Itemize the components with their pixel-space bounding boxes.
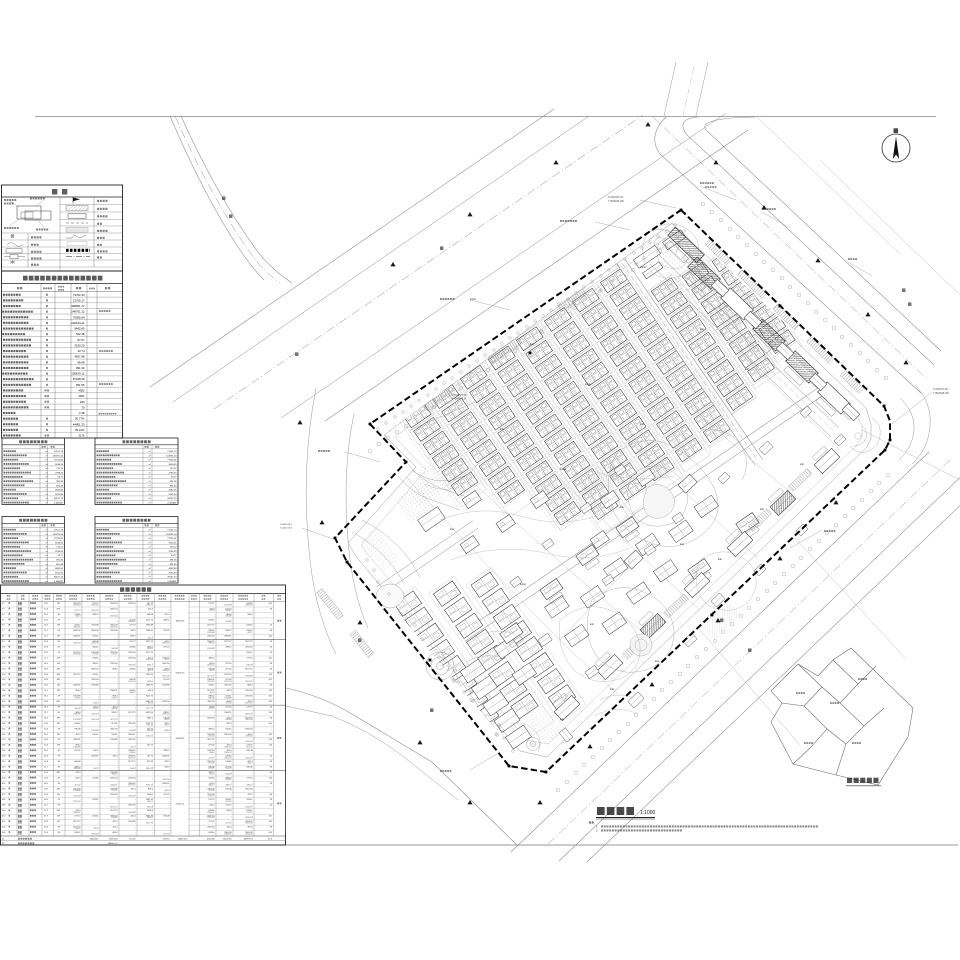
svg-text:4592.54: 4592.54 [245, 605, 253, 607]
svg-text:1058.6: 1058.6 [74, 697, 81, 699]
svg-text:257.42: 257.42 [225, 823, 232, 825]
svg-text:1903.88: 1903.88 [207, 648, 215, 650]
svg-text:4592.54: 4592.54 [146, 785, 154, 787]
svg-text:26157.13: 26157.13 [167, 498, 177, 500]
svg-text:4592.54: 4592.54 [162, 643, 170, 645]
svg-text:54.77: 54.77 [171, 477, 177, 479]
svg-text:87.67: 87.67 [78, 338, 85, 342]
svg-text:137.72: 137.72 [111, 790, 118, 792]
svg-text:70: 70 [81, 405, 85, 409]
svg-text:1058.6: 1058.6 [129, 752, 136, 754]
svg-text:3127.72: 3127.72 [110, 719, 118, 721]
svg-text:m²: m² [46, 559, 49, 562]
svg-text:946.08: 946.08 [147, 730, 154, 732]
svg-text:1903.88: 1903.88 [73, 746, 81, 748]
svg-text:m²: m² [46, 529, 49, 532]
svg-text:54.77: 54.77 [58, 477, 64, 479]
svg-text:137.72: 137.72 [111, 654, 118, 656]
svg-text:4592.54: 4592.54 [207, 665, 215, 667]
svg-text:103751.54: 103751.54 [166, 534, 177, 536]
svg-text:26157.13: 26157.13 [54, 577, 64, 579]
svg-text:2561.33: 2561.33 [73, 801, 81, 803]
svg-text:m²: m² [149, 501, 152, 504]
svg-text:m²: m² [46, 476, 49, 479]
svg-text:2561.33: 2561.33 [245, 719, 253, 721]
svg-text:17151.73: 17151.73 [54, 530, 64, 532]
svg-text:m²: m² [46, 471, 49, 474]
svg-text:77732.87: 77732.87 [54, 460, 64, 462]
svg-text:m²: m² [149, 471, 152, 474]
svg-text:3127.72: 3127.72 [128, 785, 136, 787]
svg-text:77732.87: 77732.87 [54, 538, 64, 540]
svg-text:5536.55: 5536.55 [55, 464, 64, 466]
svg-text:3924: 3924 [78, 394, 85, 398]
svg-text:715.12: 715.12 [170, 547, 177, 549]
svg-text:2592.64: 2592.64 [146, 659, 154, 661]
svg-text:348961.72: 348961.72 [71, 304, 85, 308]
svg-text:462.3: 462.3 [209, 692, 215, 694]
svg-text:2592.64: 2592.64 [91, 834, 99, 836]
svg-text:2592.64: 2592.64 [128, 795, 136, 797]
svg-text:137.72: 137.72 [208, 795, 215, 797]
svg-text:103751.54: 103751.54 [53, 455, 64, 457]
svg-text:Y=504216.8: Y=504216.8 [280, 528, 293, 530]
svg-text:1056.1: 1056.1 [147, 801, 154, 803]
svg-text:4592.54: 4592.54 [128, 681, 136, 683]
svg-text:30.77%: 30.77% [75, 417, 85, 421]
svg-text:3176: 3176 [78, 434, 85, 438]
svg-text:2561.33: 2561.33 [162, 675, 170, 677]
svg-text:257.42: 257.42 [225, 801, 232, 803]
svg-text:2584.91: 2584.91 [128, 621, 136, 623]
svg-text:17151.73: 17151.73 [167, 530, 177, 532]
svg-text:m²: m² [149, 563, 152, 566]
svg-text:5536.55: 5536.55 [55, 542, 64, 544]
svg-text:46379.74: 46379.74 [244, 839, 254, 841]
svg-text:831.55: 831.55 [76, 383, 85, 387]
svg-text:m²: m² [149, 459, 152, 462]
svg-text:946.08: 946.08 [225, 774, 232, 776]
svg-text:1903.88: 1903.88 [73, 719, 81, 721]
svg-text:1903.88: 1903.88 [128, 812, 136, 814]
svg-text:2561.33: 2561.33 [73, 795, 81, 797]
svg-text:3127.72: 3127.72 [245, 703, 253, 705]
svg-text:9731.94: 9731.94 [169, 494, 178, 496]
svg-text:103751.54: 103751.54 [166, 455, 177, 457]
svg-text:946.08: 946.08 [225, 616, 232, 618]
svg-text:257.42: 257.42 [147, 725, 154, 727]
svg-text:991.40: 991.40 [76, 366, 85, 370]
svg-text:26157.13: 26157.13 [54, 498, 64, 500]
svg-text:2561.33: 2561.33 [224, 681, 232, 683]
svg-text:2592.64: 2592.64 [162, 670, 170, 672]
svg-text:17151.73: 17151.73 [167, 451, 177, 453]
svg-text:391.36: 391.36 [170, 481, 177, 483]
svg-text:248701.12: 248701.12 [71, 310, 85, 314]
svg-text:2592.64: 2592.64 [207, 817, 215, 819]
svg-text:4582.60: 4582.60 [55, 490, 64, 492]
svg-text:2.454687: 2.454687 [54, 581, 64, 583]
svg-text:891.48: 891.48 [170, 485, 177, 487]
svg-text:257.42: 257.42 [225, 703, 232, 705]
svg-text:3579.5: 3579.5 [163, 839, 170, 841]
svg-text:715.12: 715.12 [56, 468, 63, 470]
svg-text:m²: m² [149, 550, 152, 553]
svg-text:808.4: 808.4 [148, 703, 154, 705]
svg-text:808.4: 808.4 [164, 730, 170, 732]
svg-text:m²: m² [46, 567, 49, 570]
svg-text:2561.33: 2561.33 [91, 643, 99, 645]
svg-text:2592.64: 2592.64 [91, 605, 99, 607]
svg-text:70594.04: 70594.04 [109, 839, 119, 841]
svg-text:56424.47: 56424.47 [90, 839, 100, 841]
svg-text:1056.1: 1056.1 [147, 648, 154, 650]
svg-text:3381.2: 3381.2 [208, 643, 215, 645]
svg-text:1056.1: 1056.1 [147, 681, 154, 683]
svg-text:m²: m² [149, 537, 152, 540]
svg-text:2796.25: 2796.25 [169, 472, 178, 474]
svg-text:Y=504348.138: Y=504348.138 [933, 392, 949, 395]
svg-text:43.74: 43.74 [78, 349, 85, 353]
svg-text:m²: m² [149, 476, 152, 479]
svg-text:m²: m² [46, 576, 49, 579]
svg-text:70547.81: 70547.81 [223, 839, 233, 841]
svg-text:246194.41: 246194.41 [71, 321, 85, 325]
svg-text:3381.2: 3381.2 [208, 785, 215, 787]
svg-text:462.3: 462.3 [148, 637, 154, 639]
svg-text:2584.91: 2584.91 [73, 714, 81, 716]
svg-text:2.38: 2.38 [79, 411, 85, 415]
svg-text:391.36: 391.36 [56, 481, 63, 483]
svg-text:2584.91: 2584.91 [146, 605, 154, 607]
svg-text:1903.88: 1903.88 [73, 790, 81, 792]
svg-text:108571.15: 108571.15 [178, 839, 189, 841]
svg-text:137.72: 137.72 [208, 757, 215, 759]
svg-text:X=331735.417: X=331735.417 [608, 196, 624, 199]
svg-text:9731.94: 9731.94 [169, 572, 178, 574]
svg-text:2592.64: 2592.64 [73, 768, 81, 770]
svg-text:m²: m² [46, 554, 49, 557]
svg-text:m²: m² [149, 554, 152, 557]
svg-text:m²: m² [149, 463, 152, 466]
svg-text:30974.05: 30974.05 [176, 621, 186, 623]
svg-text:137.72: 137.72 [111, 697, 118, 699]
svg-text:2.454687: 2.454687 [167, 502, 177, 504]
svg-text:462.3: 462.3 [93, 768, 99, 770]
svg-text:m²: m² [46, 550, 49, 553]
svg-text:391.36: 391.36 [56, 560, 63, 562]
svg-text:4057.88: 4057.88 [207, 839, 215, 841]
svg-text:17151.73: 17151.73 [54, 451, 64, 453]
svg-text:2584.91: 2584.91 [224, 834, 232, 836]
svg-text:97028.36: 97028.36 [73, 377, 85, 381]
svg-text:4592.54: 4592.54 [91, 610, 99, 612]
svg-text:808.4: 808.4 [209, 752, 215, 754]
svg-text:4382: 4382 [78, 389, 85, 393]
svg-text:425.3: 425.3 [164, 659, 170, 661]
svg-text:4582.60: 4582.60 [169, 490, 178, 492]
svg-text:m²: m² [149, 541, 152, 544]
svg-text:m²: m² [46, 497, 49, 500]
svg-text:2796.25: 2796.25 [169, 551, 178, 553]
svg-text:5536.55: 5536.55 [169, 464, 178, 466]
svg-text:2592.64: 2592.64 [110, 616, 118, 618]
svg-text:257.42: 257.42 [74, 785, 81, 787]
svg-text:m²: m² [149, 454, 152, 457]
svg-text:m²: m² [46, 463, 49, 466]
svg-text:462.3: 462.3 [164, 790, 170, 792]
svg-text:257.42: 257.42 [208, 790, 215, 792]
svg-text:2.454687: 2.454687 [54, 502, 64, 504]
svg-text:3381.2: 3381.2 [225, 785, 232, 787]
svg-text:2584.91: 2584.91 [207, 812, 215, 814]
svg-text:1058.6: 1058.6 [111, 817, 118, 819]
svg-text:m²: m² [46, 580, 49, 583]
svg-text:3381.2: 3381.2 [129, 692, 136, 694]
svg-text:2592.64: 2592.64 [245, 735, 253, 737]
svg-text:3127.72: 3127.72 [110, 806, 118, 808]
svg-text:m²: m² [46, 493, 49, 496]
svg-text:m²: m² [46, 546, 49, 549]
svg-text:2592.64: 2592.64 [128, 665, 136, 667]
svg-text:48.48: 48.48 [78, 360, 85, 364]
svg-text:2561.33: 2561.33 [245, 834, 253, 836]
svg-text:103751.54: 103751.54 [53, 534, 64, 536]
svg-text:137.72: 137.72 [246, 812, 253, 814]
svg-text:257.42: 257.42 [163, 834, 170, 836]
svg-text:462.3: 462.3 [164, 719, 170, 721]
svg-text:2561.33: 2561.33 [224, 752, 232, 754]
svg-text:m²: m² [149, 493, 152, 496]
svg-text:m²: m² [46, 571, 49, 574]
svg-text:2584.91: 2584.91 [73, 626, 81, 628]
svg-text:1.: 1. [596, 826, 598, 829]
svg-text:Y=504348.138: Y=504348.138 [608, 200, 624, 203]
svg-text:60003.79: 60003.79 [176, 672, 186, 674]
svg-text:2592.64: 2592.64 [73, 605, 81, 607]
svg-text:257.42: 257.42 [92, 708, 99, 710]
svg-text:m²: m² [46, 563, 49, 566]
svg-text:542.48: 542.48 [76, 332, 85, 336]
svg-text:808.4: 808.4 [93, 703, 99, 705]
svg-text:m²: m² [46, 467, 49, 470]
svg-text:4582.60: 4582.60 [169, 568, 178, 570]
svg-text:391.36: 391.36 [170, 560, 177, 562]
svg-text:2.: 2. [596, 830, 598, 833]
svg-text:m²: m² [149, 450, 152, 453]
svg-text:77732.87: 77732.87 [167, 460, 177, 462]
svg-text:m²: m² [46, 484, 49, 487]
svg-text:425.3: 425.3 [209, 774, 215, 776]
svg-text:137.72: 137.72 [225, 768, 232, 770]
svg-text:100819.12: 100819.12 [71, 372, 85, 376]
svg-text:946.08: 946.08 [111, 648, 118, 650]
svg-text:m²: m² [149, 497, 152, 500]
svg-text:m²: m² [149, 559, 152, 562]
svg-text:70506.84: 70506.84 [73, 315, 85, 319]
svg-text:1903.88: 1903.88 [207, 632, 215, 634]
svg-text:m²: m² [46, 541, 49, 544]
svg-text:m²: m² [46, 489, 49, 492]
svg-text:m²: m² [46, 533, 49, 536]
svg-text:1056.1: 1056.1 [225, 779, 232, 781]
svg-text:2561.33: 2561.33 [146, 768, 154, 770]
svg-text:2561.33: 2561.33 [245, 681, 253, 683]
svg-text:26157.13: 26157.13 [167, 577, 177, 579]
svg-text:891.48: 891.48 [56, 564, 63, 566]
svg-text:462.3: 462.3 [75, 616, 81, 618]
svg-text:1903.88: 1903.88 [91, 730, 99, 732]
svg-text:425.3: 425.3 [209, 610, 215, 612]
svg-text:946.08: 946.08 [246, 665, 253, 667]
svg-text:2584.91: 2584.91 [73, 812, 81, 814]
svg-text:9731.94: 9731.94 [55, 494, 64, 496]
svg-text:m²: m² [46, 537, 49, 540]
svg-text:462.3: 462.3 [247, 632, 253, 634]
svg-text:2592.64: 2592.64 [110, 626, 118, 628]
svg-text:1058.6: 1058.6 [129, 730, 136, 732]
svg-text:257.42: 257.42 [246, 746, 253, 748]
svg-text:5536.55: 5536.55 [169, 542, 178, 544]
svg-text:137.72: 137.72 [208, 768, 215, 770]
svg-text:715.12: 715.12 [56, 547, 63, 549]
svg-text:1058.6: 1058.6 [225, 719, 232, 721]
svg-text:77732.87: 77732.87 [167, 538, 177, 540]
svg-text:m²: m² [149, 580, 152, 583]
svg-text:2584.91: 2584.91 [245, 806, 253, 808]
svg-text:1903.88: 1903.88 [73, 654, 81, 656]
svg-text:9731.94: 9731.94 [55, 572, 64, 574]
svg-text:73762.43: 73762.43 [73, 293, 85, 297]
svg-text:891.48: 891.48 [170, 564, 177, 566]
svg-text:715.12: 715.12 [170, 468, 177, 470]
svg-text:3381.2: 3381.2 [111, 774, 118, 776]
svg-text:137.72: 137.72 [208, 708, 215, 710]
svg-text:2561.33: 2561.33 [224, 757, 232, 759]
svg-text:4592.54: 4592.54 [245, 817, 253, 819]
svg-text:3127.72: 3127.72 [207, 675, 215, 677]
svg-text:3127.72: 3127.72 [146, 823, 154, 825]
svg-text:257.42: 257.42 [208, 735, 215, 737]
svg-text:946.08: 946.08 [111, 708, 118, 710]
svg-text:1903.88: 1903.88 [224, 605, 232, 607]
svg-text:462.3: 462.3 [75, 828, 81, 830]
svg-text:m²: m² [149, 467, 152, 470]
svg-text:4592.54: 4592.54 [224, 746, 232, 748]
svg-text:3127.72: 3127.72 [146, 708, 154, 710]
svg-text:m²: m² [149, 489, 152, 492]
svg-text:4592.54: 4592.54 [162, 779, 170, 781]
svg-text:m²: m² [46, 480, 49, 483]
svg-text:4592.54: 4592.54 [245, 741, 253, 743]
svg-text:9465.80: 9465.80 [74, 327, 85, 331]
svg-text:891.48: 891.48 [56, 485, 63, 487]
svg-text:2592.64: 2592.64 [207, 681, 215, 683]
svg-text:425.3: 425.3 [93, 828, 99, 830]
svg-text:3127.72: 3127.72 [128, 757, 136, 759]
svg-text:Y=504478.24: Y=504478.24 [452, 398, 467, 401]
svg-text:4657.88: 4657.88 [74, 355, 85, 359]
svg-text:946.08: 946.08 [147, 806, 154, 808]
svg-text:3381.2: 3381.2 [147, 665, 154, 667]
svg-text:462.3: 462.3 [209, 670, 215, 672]
svg-text:1:1000: 1:1000 [640, 810, 656, 816]
svg-text:m²: m² [149, 480, 152, 483]
svg-text:2796.25: 2796.25 [55, 551, 64, 553]
svg-text:2.454687: 2.454687 [167, 581, 177, 583]
svg-text:m²: m² [46, 501, 49, 504]
svg-text:2796.25: 2796.25 [55, 472, 64, 474]
svg-text:60566.87: 60566.87 [176, 738, 186, 740]
svg-text:137.72: 137.72 [74, 610, 81, 612]
svg-text:946.08: 946.08 [208, 697, 215, 699]
svg-text:44851.23: 44851.23 [73, 422, 85, 426]
svg-text:240: 240 [80, 400, 85, 404]
svg-text:715.45: 715.45 [129, 839, 136, 841]
svg-text:m²: m² [149, 529, 152, 532]
svg-text:4592.54: 4592.54 [245, 714, 253, 716]
svg-text:2150.20: 2150.20 [74, 344, 85, 348]
svg-text:m²: m² [149, 576, 152, 579]
svg-text:2561.33: 2561.33 [146, 735, 154, 737]
svg-text:m²: m² [149, 484, 152, 487]
svg-text:m²: m² [149, 567, 152, 570]
svg-text:1056.1: 1056.1 [147, 817, 154, 819]
svg-text:2561.33: 2561.33 [245, 823, 253, 825]
svg-text:m²: m² [149, 533, 152, 536]
svg-text:946.08: 946.08 [74, 708, 81, 710]
svg-text:2561.33: 2561.33 [245, 757, 253, 759]
svg-text:m²: m² [46, 459, 49, 462]
svg-text:462.3: 462.3 [247, 763, 253, 765]
svg-text:4592.54: 4592.54 [91, 719, 99, 721]
svg-text:462.3: 462.3 [148, 670, 154, 672]
svg-text:m²: m² [149, 571, 152, 574]
svg-text:348961.72: 348961.72 [108, 843, 119, 845]
svg-text:257.42: 257.42 [92, 654, 99, 656]
svg-text:2592.64: 2592.64 [73, 643, 81, 645]
svg-text:3381.2: 3381.2 [246, 785, 253, 787]
svg-text:425.3: 425.3 [130, 746, 136, 748]
svg-text:54.77: 54.77 [171, 555, 177, 557]
svg-text:3381.2: 3381.2 [225, 610, 232, 612]
svg-text:808.4: 808.4 [130, 768, 136, 770]
svg-text:462.3: 462.3 [164, 725, 170, 727]
svg-text:X=331544.0: X=331544.0 [280, 524, 293, 526]
svg-text:2592.64: 2592.64 [162, 714, 170, 716]
svg-text:54.77: 54.77 [58, 555, 64, 557]
svg-text:257.42: 257.42 [208, 763, 215, 765]
svg-text:21765.17: 21765.17 [73, 298, 85, 302]
svg-text:m²: m² [149, 546, 152, 549]
svg-text:29161.21: 29161.21 [176, 803, 186, 805]
svg-text:1903.88: 1903.88 [224, 697, 232, 699]
svg-text:1058.6: 1058.6 [225, 621, 232, 623]
svg-text:m²: m² [46, 450, 49, 453]
svg-text:X=331770.417: X=331770.417 [933, 388, 949, 391]
svg-text:35.10%: 35.10% [75, 428, 85, 432]
svg-text:1903.88: 1903.88 [245, 675, 253, 677]
svg-text:m²: m² [46, 454, 49, 457]
svg-text:4582.60: 4582.60 [55, 568, 64, 570]
svg-text:2584.91: 2584.91 [110, 785, 118, 787]
svg-text:2592.64: 2592.64 [91, 714, 99, 716]
